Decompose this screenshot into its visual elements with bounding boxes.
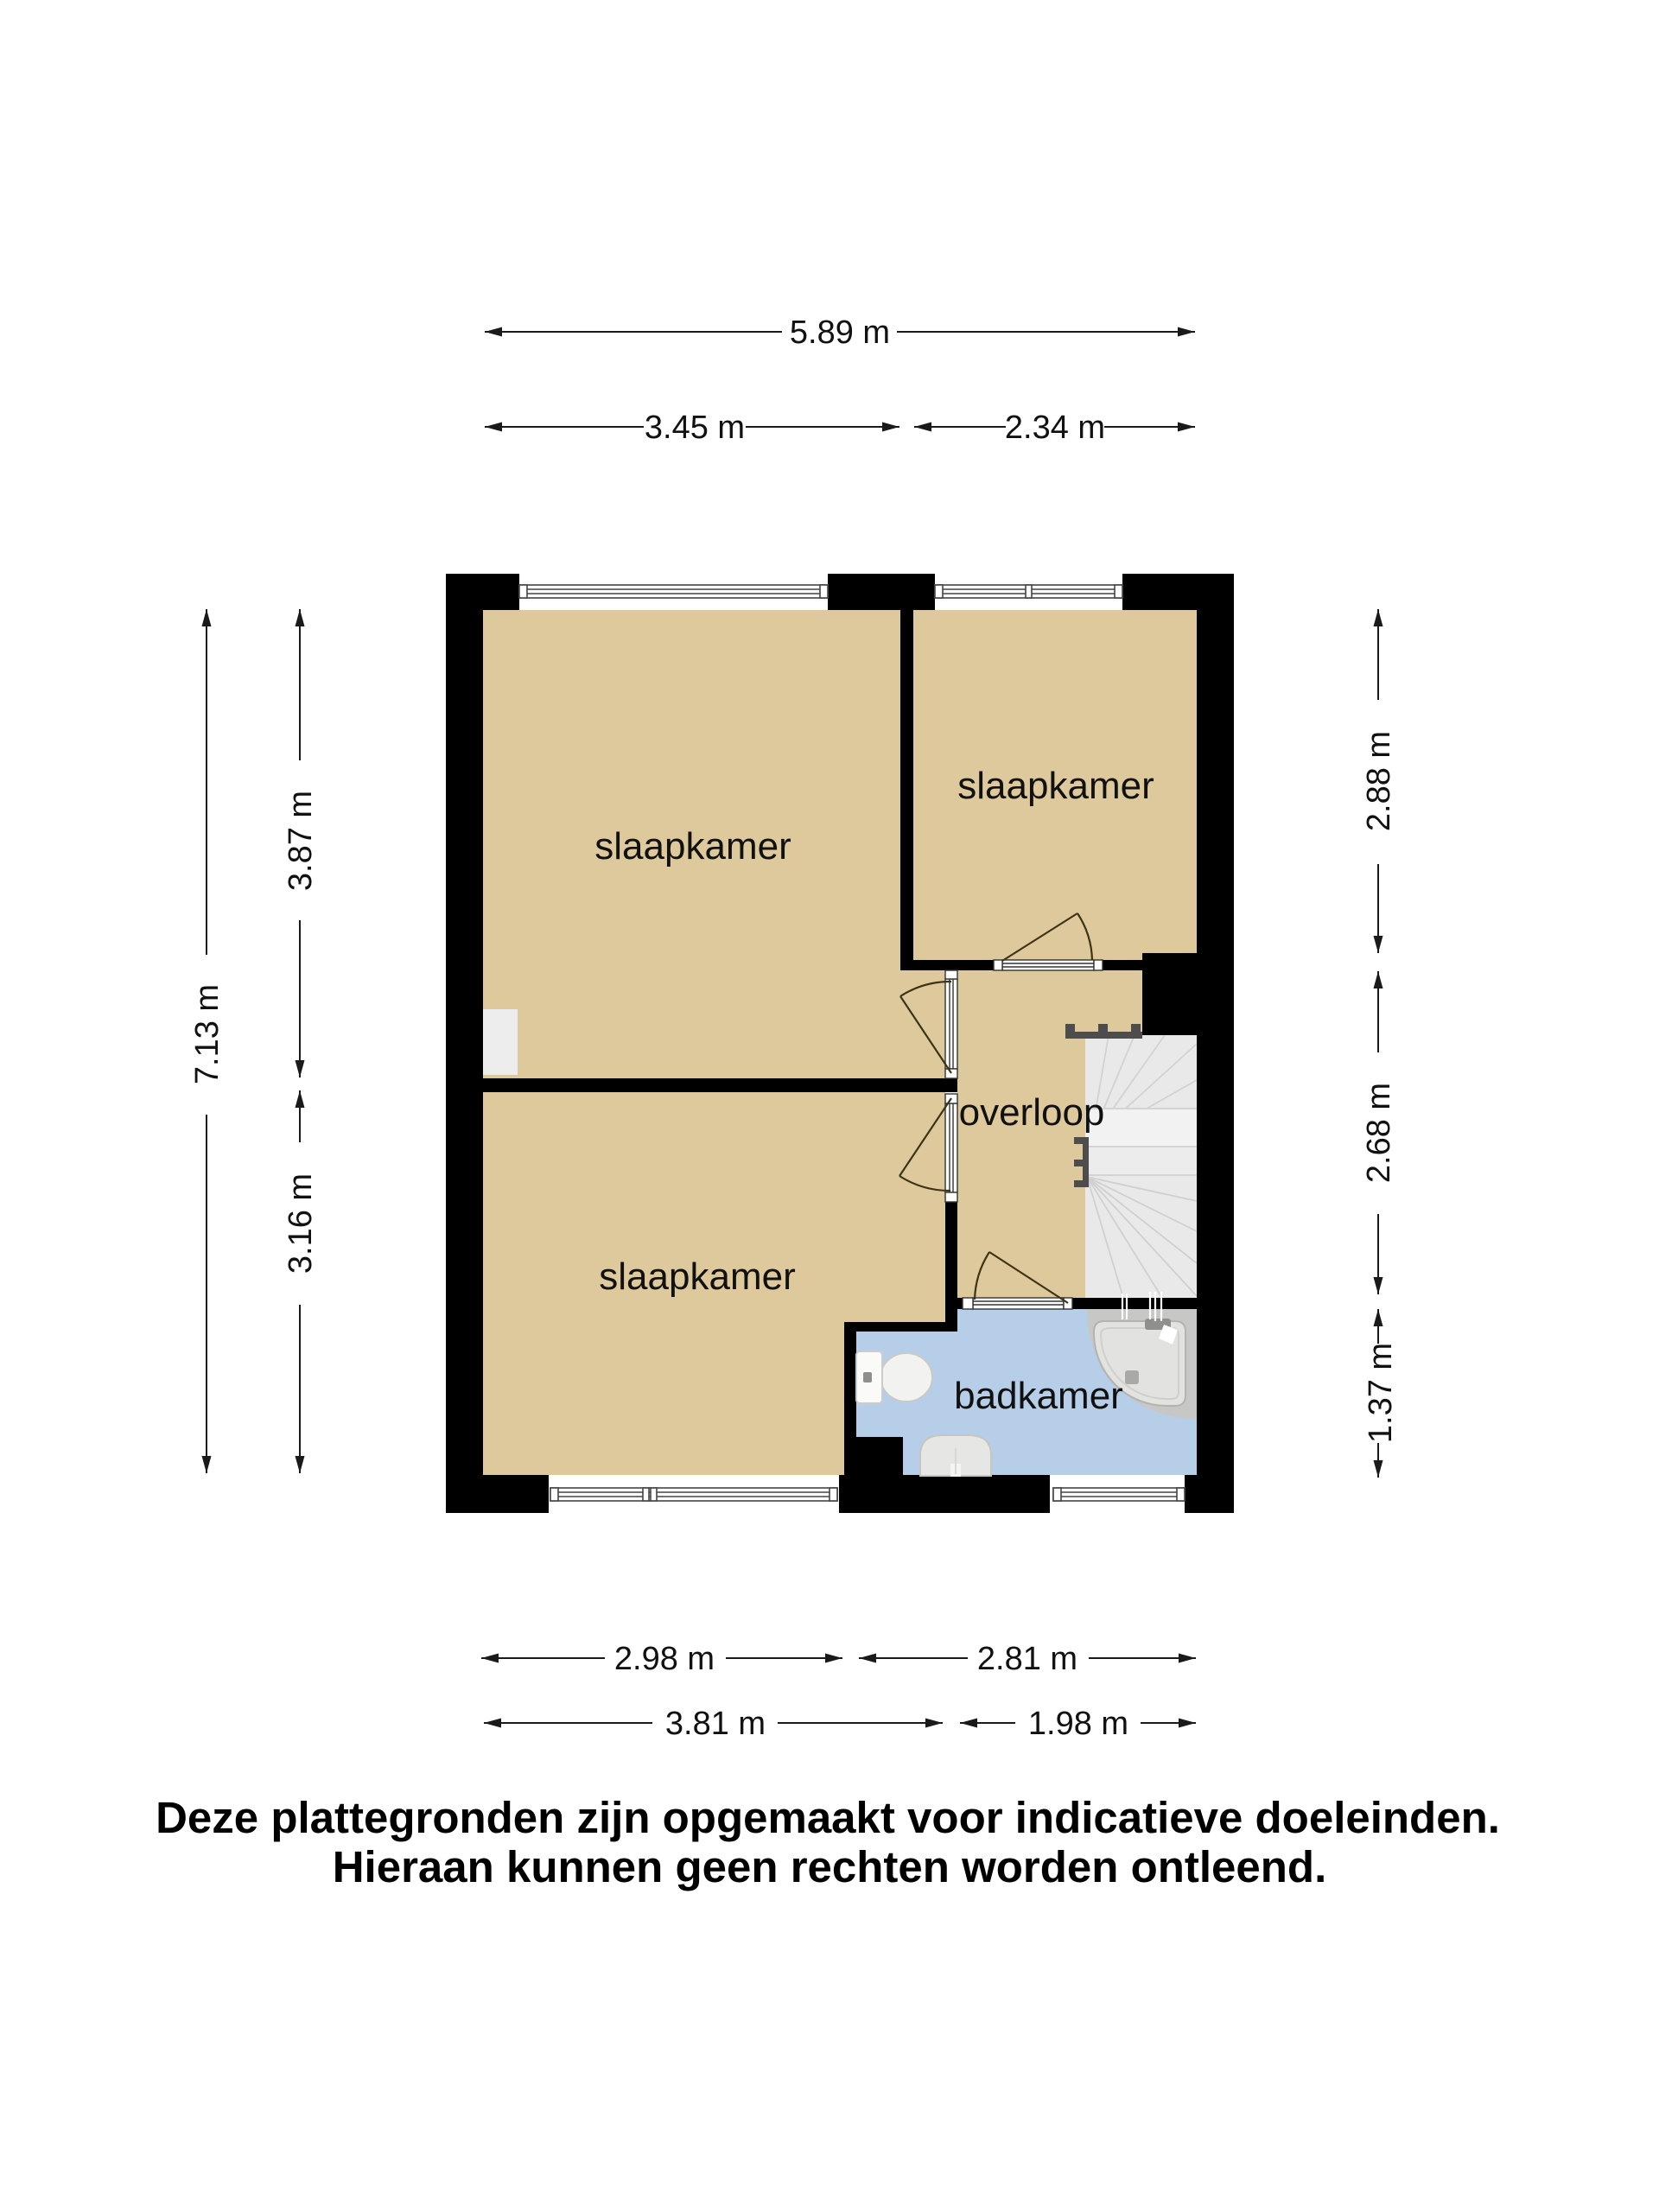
svg-text:2.98 m: 2.98 m: [614, 1641, 715, 1677]
svg-text:1.98 m: 1.98 m: [1028, 1706, 1128, 1742]
svg-text:7.13 m: 7.13 m: [189, 984, 226, 1084]
svg-text:1.37 m: 1.37 m: [1363, 1343, 1399, 1443]
svg-text:3.87 m: 3.87 m: [283, 791, 319, 891]
svg-text:2.81 m: 2.81 m: [977, 1641, 1077, 1677]
svg-text:2.68 m: 2.68 m: [1361, 1083, 1397, 1183]
svg-text:2.34 m: 2.34 m: [1005, 410, 1105, 446]
svg-text:3.45 m: 3.45 m: [645, 410, 745, 446]
svg-text:slaapkamer: slaapkamer: [594, 825, 791, 868]
svg-text:2.88 m: 2.88 m: [1361, 731, 1397, 831]
svg-text:badkamer: badkamer: [954, 1375, 1123, 1417]
svg-text:3.16 m: 3.16 m: [283, 1173, 319, 1274]
svg-text:slaapkamer: slaapkamer: [957, 765, 1154, 807]
svg-text:5.89 m: 5.89 m: [790, 315, 890, 351]
svg-text:Hieraan kunnen geen rechten wo: Hieraan kunnen geen rechten worden ontle…: [333, 1842, 1327, 1891]
svg-text:slaapkamer: slaapkamer: [599, 1255, 795, 1298]
svg-text:3.81 m: 3.81 m: [665, 1706, 766, 1742]
svg-text:Deze plattegronden zijn opgema: Deze plattegronden zijn opgemaakt voor i…: [156, 1793, 1500, 1842]
svg-text:overloop: overloop: [959, 1091, 1105, 1134]
